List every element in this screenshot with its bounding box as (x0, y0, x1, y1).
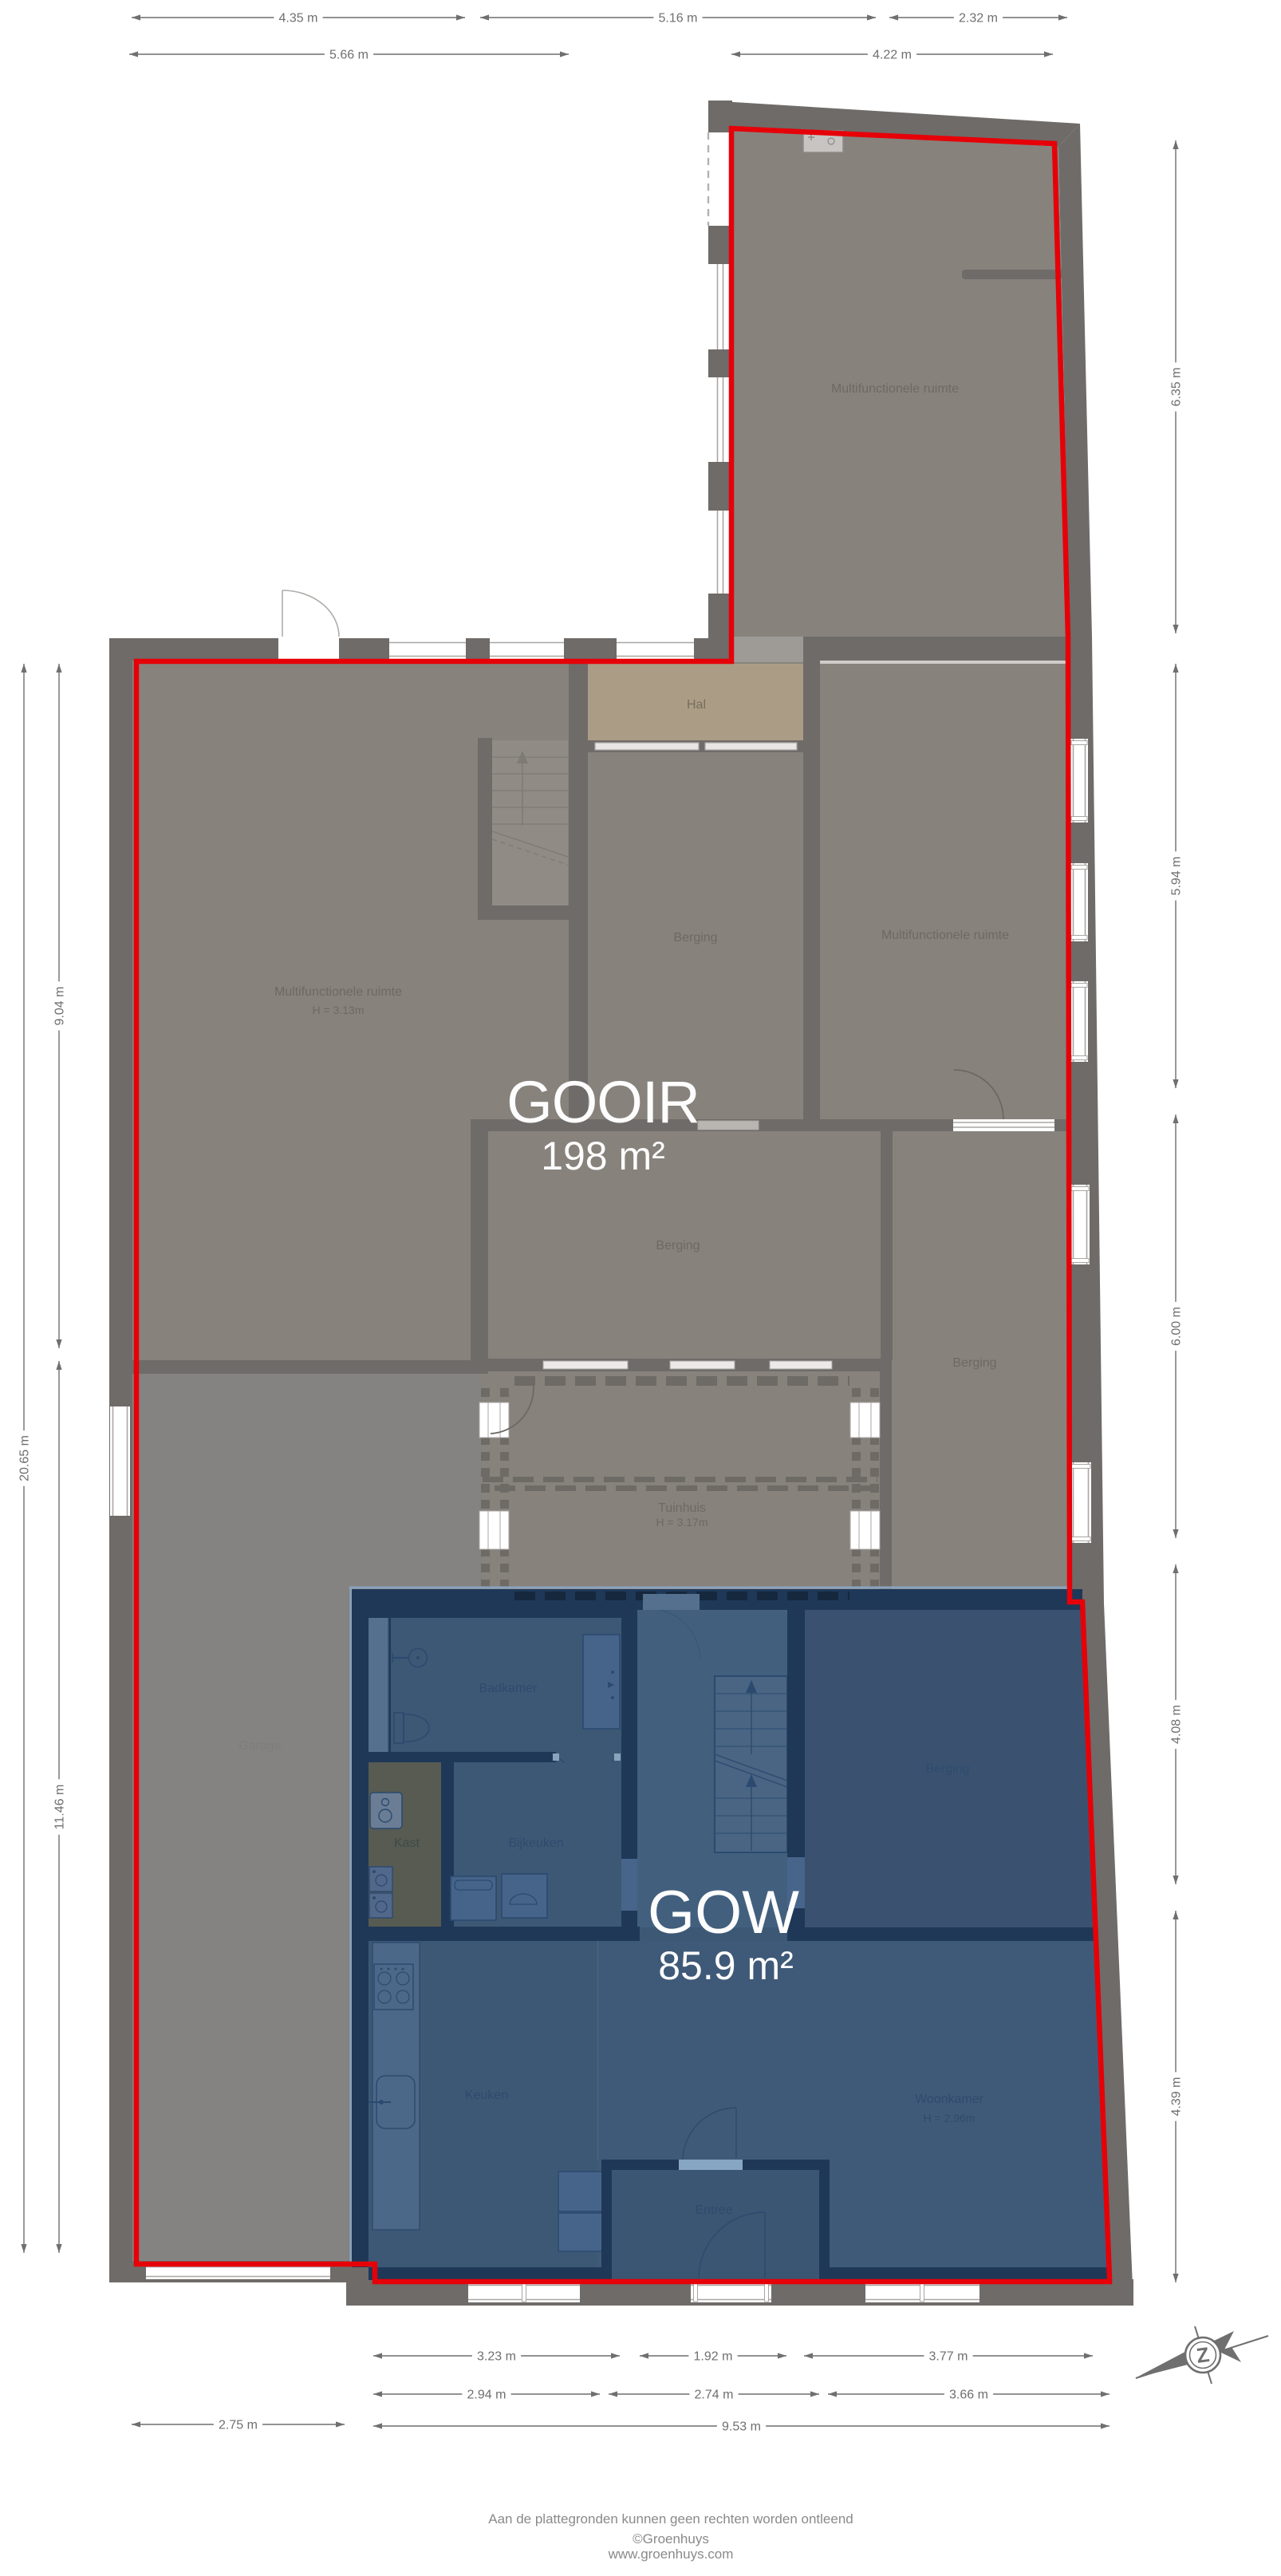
svg-text:GOW: GOW (648, 1879, 799, 1947)
svg-text:6.00 m: 6.00 m (1170, 1307, 1184, 1346)
svg-text:©Groenhuys: ©Groenhuys (633, 2531, 709, 2546)
svg-text:4.08 m: 4.08 m (1170, 1705, 1184, 1744)
svg-text:3.66 m: 3.66 m (949, 2389, 988, 2402)
svg-text:5.16 m: 5.16 m (659, 12, 698, 26)
svg-text:20.65 m: 20.65 m (18, 1435, 32, 1481)
svg-text:Multifunctionele ruimte: Multifunctionele ruimte (274, 985, 402, 999)
svg-text:2.75 m: 2.75 m (219, 2419, 258, 2432)
svg-text:Entree: Entree (695, 2203, 732, 2217)
svg-text:9.53 m: 9.53 m (722, 2420, 761, 2434)
svg-text:2.94 m: 2.94 m (467, 2389, 506, 2402)
svg-text:5.66 m: 5.66 m (329, 49, 369, 62)
svg-text:11.46 m: 11.46 m (53, 1785, 67, 1830)
svg-text:Garage: Garage (238, 1739, 281, 1753)
svg-text:5.94 m: 5.94 m (1170, 857, 1184, 896)
svg-text:Bijkeuken: Bijkeuken (508, 1836, 563, 1850)
svg-text:2.32 m: 2.32 m (959, 12, 998, 26)
svg-text:Multifunctionele ruimte: Multifunctionele ruimte (831, 382, 959, 396)
svg-text:4.39 m: 4.39 m (1170, 2077, 1184, 2116)
svg-text:www.groenhuys.com: www.groenhuys.com (608, 2546, 734, 2562)
svg-text:Multifunctionele ruimte: Multifunctionele ruimte (881, 929, 1009, 942)
svg-text:198 m²: 198 m² (541, 1134, 665, 1178)
svg-text:Tuinhuis: Tuinhuis (658, 1501, 706, 1515)
svg-text:H = 2.96m: H = 2.96m (924, 2112, 976, 2124)
svg-text:H = 3.17m: H = 3.17m (656, 1516, 708, 1529)
svg-text:Woonkamer: Woonkamer (915, 2093, 984, 2106)
svg-text:6.35 m: 6.35 m (1170, 368, 1184, 407)
svg-text:4.35 m: 4.35 m (279, 12, 318, 26)
svg-text:85.9 m²: 85.9 m² (658, 1943, 794, 1988)
svg-text:4.22 m: 4.22 m (873, 49, 912, 62)
svg-text:Hal: Hal (687, 698, 706, 712)
svg-text:Berging: Berging (673, 931, 717, 945)
svg-text:Kast: Kast (394, 1836, 420, 1850)
svg-text:Berging: Berging (952, 1356, 996, 1370)
svg-text:Aan de plattegronden kunnen ge: Aan de plattegronden kunnen geen rechten… (488, 2511, 853, 2527)
svg-text:Berging: Berging (925, 1762, 969, 1776)
svg-text:3.77 m: 3.77 m (929, 2350, 968, 2364)
svg-text:3.23 m: 3.23 m (477, 2350, 516, 2364)
svg-text:Keuken: Keuken (465, 2089, 508, 2102)
svg-text:1.92 m: 1.92 m (694, 2350, 733, 2364)
svg-text:H = 3.13m: H = 3.13m (313, 1004, 365, 1016)
svg-text:9.04 m: 9.04 m (53, 987, 67, 1026)
svg-text:Berging: Berging (656, 1239, 700, 1252)
svg-text:Badkamer: Badkamer (479, 1682, 538, 1695)
svg-text:2.74 m: 2.74 m (695, 2389, 734, 2402)
svg-text:GOOIR: GOOIR (506, 1069, 700, 1135)
